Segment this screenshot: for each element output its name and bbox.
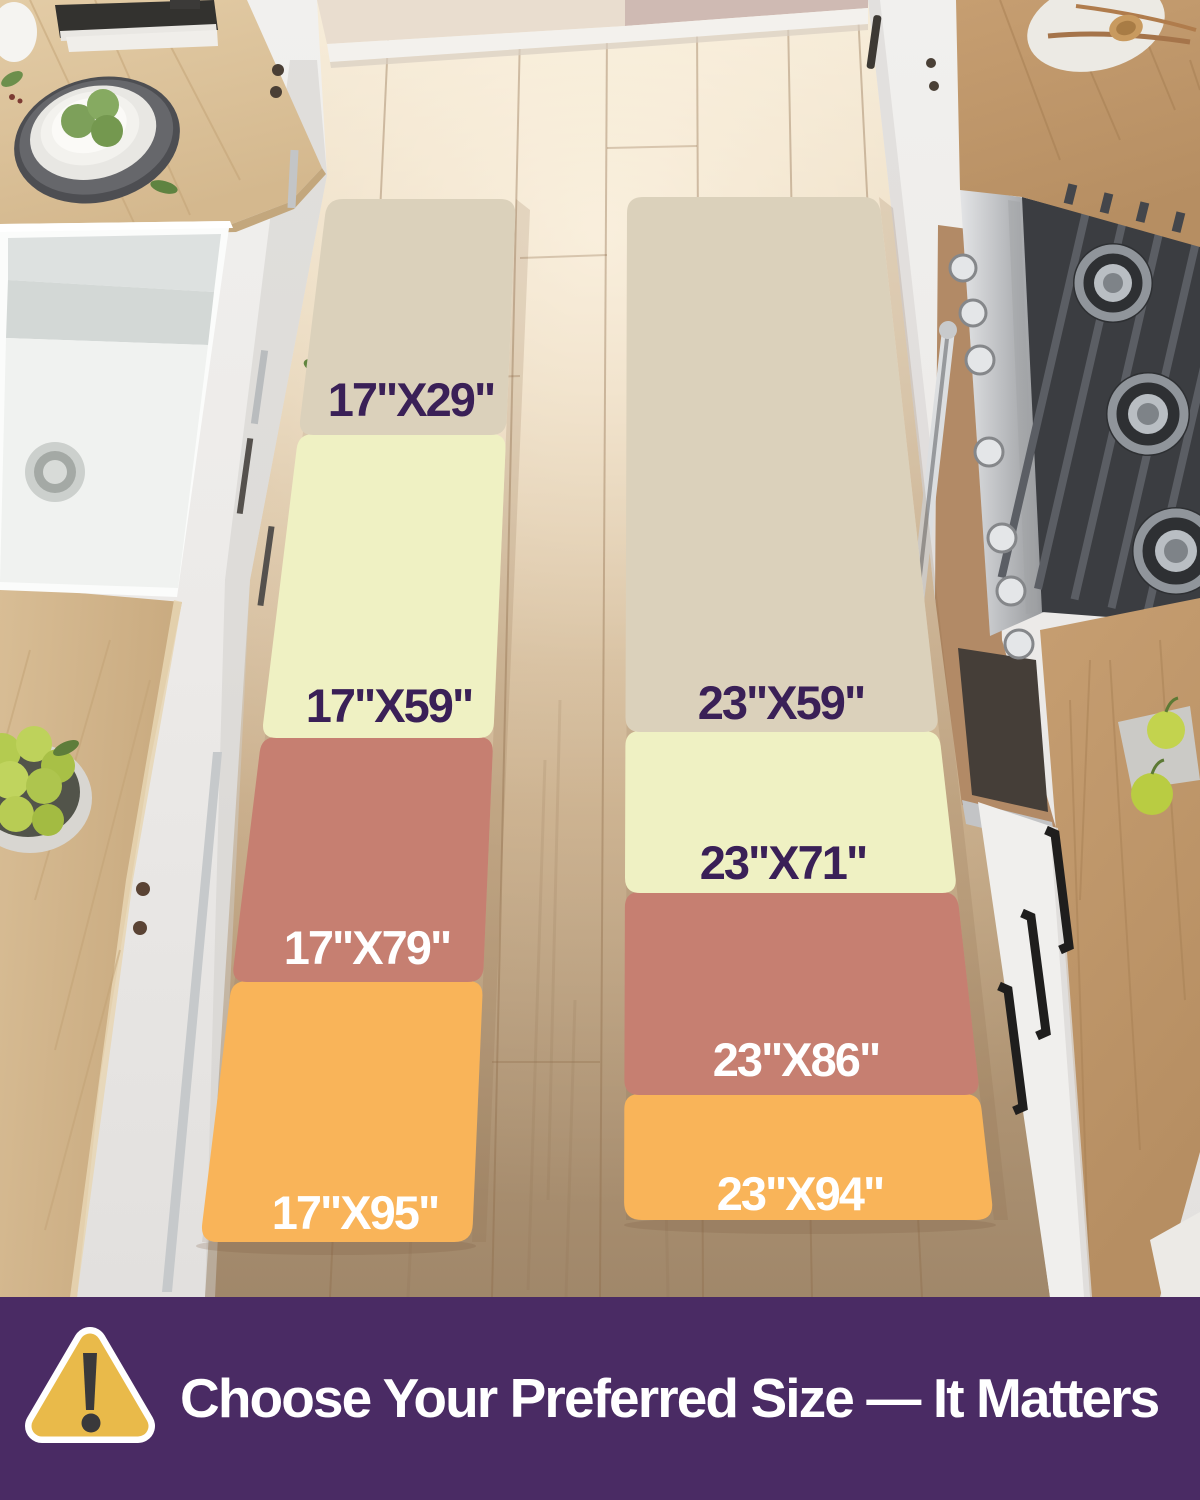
svg-text:17"X59": 17"X59" bbox=[306, 679, 472, 732]
svg-text:23"X71": 23"X71" bbox=[700, 836, 866, 889]
svg-text:17"X29": 17"X29" bbox=[328, 373, 494, 426]
svg-text:17"X79": 17"X79" bbox=[284, 921, 450, 974]
svg-text:23"X59": 23"X59" bbox=[698, 676, 864, 729]
svg-text:23"X94": 23"X94" bbox=[717, 1167, 883, 1220]
svg-text:17"X95": 17"X95" bbox=[272, 1186, 438, 1239]
svg-text:23"X86": 23"X86" bbox=[713, 1033, 879, 1086]
